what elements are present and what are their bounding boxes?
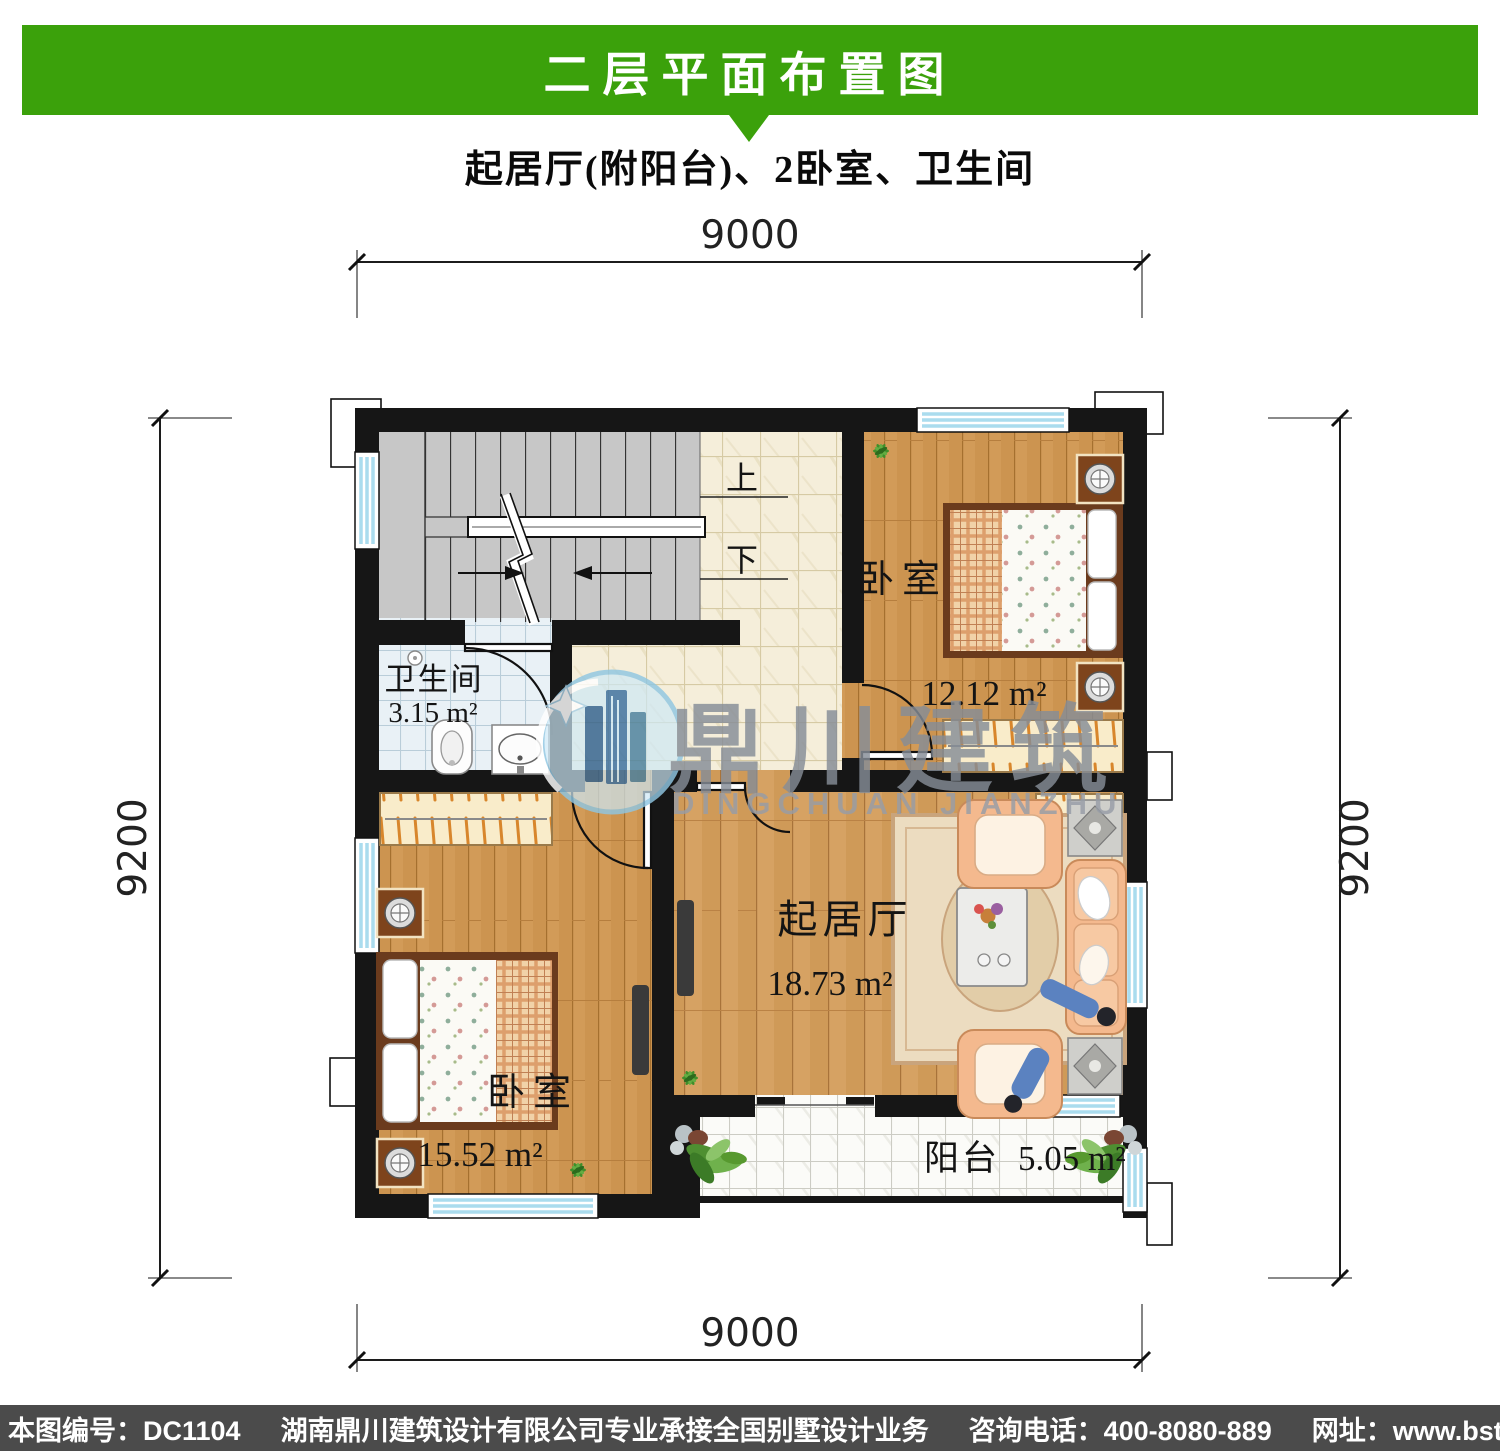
dim-left <box>148 410 232 1286</box>
window-bottom-bedroom <box>428 1194 598 1218</box>
balcony-area: 5.05 m² <box>1018 1139 1126 1178</box>
dingchuan-logo-icon <box>539 672 682 812</box>
stairs-up-label: 上 <box>726 460 758 496</box>
tv <box>632 985 649 1075</box>
bedroom-top-label: 卧室 <box>856 559 948 601</box>
floor-plan-drawing: 上 下 卫生间 3.15 m² 卧室 12.12 m² 卧室 15.52 m² … <box>0 0 1500 1451</box>
stairs-down-label: 下 <box>726 542 758 578</box>
nightstand <box>1077 455 1123 503</box>
dim-bottom-value: 9000 <box>700 1311 799 1356</box>
window-right-balcony <box>1123 1148 1147 1212</box>
window-top-bedroom <box>917 408 1069 432</box>
bathroom-label: 卫生间 <box>385 662 484 697</box>
bed <box>943 503 1123 658</box>
living-label: 起居厅 <box>778 897 913 942</box>
tv <box>677 900 694 996</box>
bathroom-area: 3.15 m² <box>388 697 478 729</box>
nightstand <box>377 889 423 937</box>
footer-company: 湖南鼎川建筑设计有限公司专业承接全国别墅设计业务 <box>281 1409 929 1448</box>
coffee-table <box>957 888 1027 986</box>
bedroom-bottom-label: 卧室 <box>487 1072 579 1114</box>
footer-plan-no: 本图编号：DC1104 <box>8 1409 241 1448</box>
wardrobe <box>380 793 552 845</box>
living-area: 18.73 m² <box>767 964 892 1003</box>
dim-right-value: 9200 <box>1333 798 1378 897</box>
dim-top <box>349 250 1150 318</box>
window-left-stairs <box>355 452 379 549</box>
footer-bar: 本图编号：DC1104 湖南鼎川建筑设计有限公司专业承接全国别墅设计业务 咨询电… <box>0 1405 1500 1451</box>
side-table <box>1068 1038 1122 1094</box>
bedroom-bottom-area: 15.52 m² <box>417 1135 542 1174</box>
footer-phone: 咨询电话：400-8080-889 <box>969 1409 1272 1448</box>
nightstand <box>377 1139 423 1187</box>
watermark-en: DINGCHUAN JIANZHU <box>672 786 1123 821</box>
footer-website: 网址：www.bstzcs.com <box>1312 1409 1500 1448</box>
balcony-label: 阳台 <box>924 1139 1000 1178</box>
floor-plan-page: 二层平面布置图 起居厅(附阳台)、2卧室、卫生间 <box>0 0 1500 1451</box>
dim-left-value: 9200 <box>111 798 156 897</box>
dim-top-value: 9000 <box>700 213 799 258</box>
window-left-bedroom <box>355 838 379 953</box>
